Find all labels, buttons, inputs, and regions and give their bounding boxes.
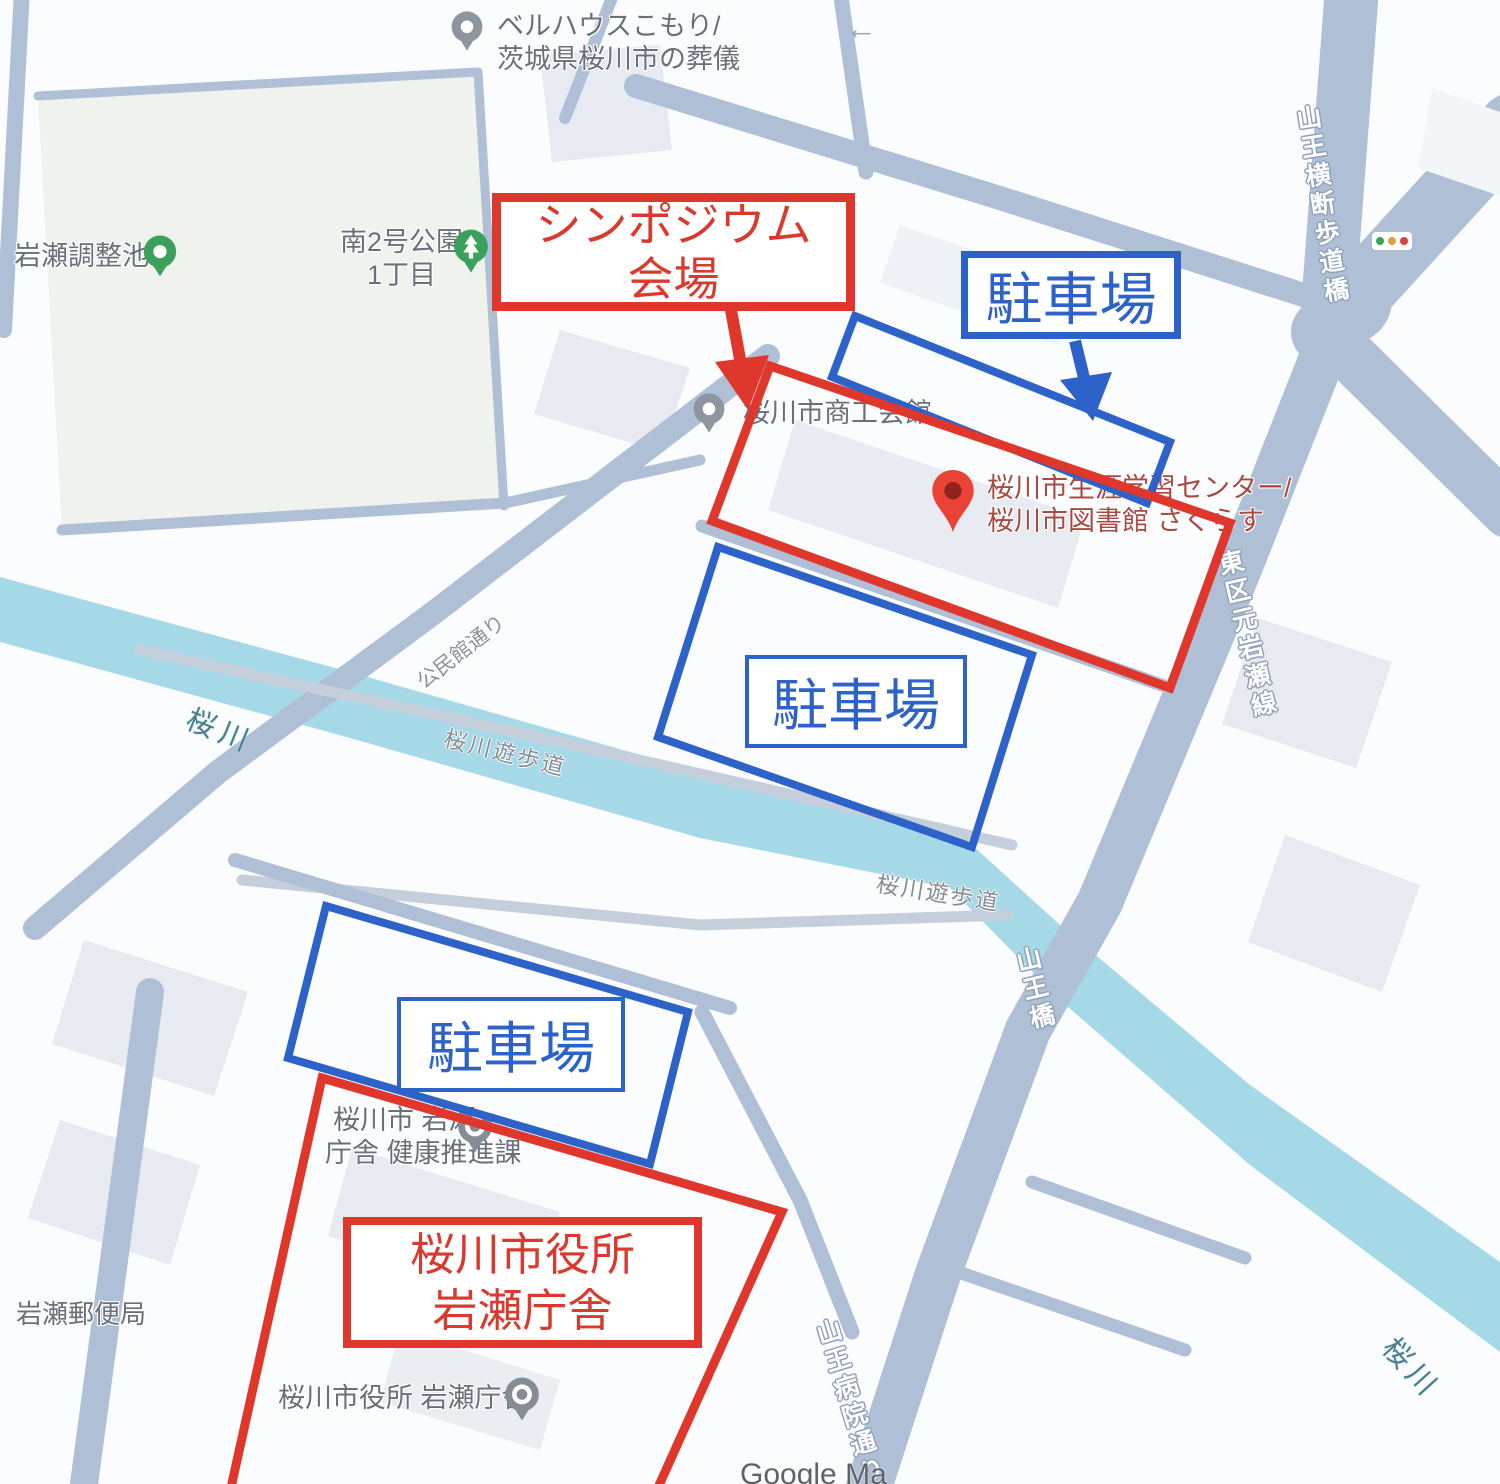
traffic-light-icon: [1372, 232, 1412, 255]
funeral-poi-marker-icon: [450, 10, 484, 57]
river-label-southeast: 桜川: [1374, 1327, 1452, 1407]
parking-label-box-middle: 駐車場: [745, 655, 967, 748]
park-area: [38, 72, 504, 530]
parking-label-box-lower: 駐車場: [397, 997, 625, 1092]
parking-arrow: [1060, 341, 1112, 421]
government-marker-icon: [456, 1108, 494, 1159]
learning-center-label: 桜川市生涯学習センター/ 桜川市図書館 さくらす: [987, 472, 1292, 538]
funeral-home-label: ベルハウスこもり/ 茨城県桜川市の葬儀: [497, 10, 740, 76]
promenade-label-south: 桜川遊歩道: [874, 864, 1003, 917]
map-canvas: ← ベルハウスこもり/ 茨城県桜川市の葬儀 岩瀬調整池B 南2号公園 1丁目 桜…: [0, 0, 1500, 1484]
corner-buildings: [1418, 88, 1500, 196]
venue-label-box: シンポジウム 会場: [492, 193, 855, 311]
park-marker-icon: [452, 228, 490, 279]
government-marker-icon: [503, 1376, 541, 1427]
map-attribution: Google Ma: [740, 1458, 887, 1484]
cityhall-label-box: 桜川市役所 岩瀬庁舎: [343, 1217, 702, 1348]
post-office-label: 岩瀬郵便局: [16, 1298, 146, 1331]
parking-label-box-top: 駐車場: [961, 251, 1181, 339]
chamber-poi-marker-icon: [692, 392, 726, 439]
reservoir-marker-icon: [142, 234, 178, 283]
road-label-motoiwase: 東区元岩瀬線: [1209, 546, 1283, 724]
local-street-label: 公民館通り: [410, 607, 511, 695]
chamber-of-commerce-label: 桜川市商工会館: [743, 397, 932, 430]
road-label-ped-bridge: 山王横断歩道橋: [1287, 102, 1354, 308]
one-way-arrow-icon: ←: [845, 10, 877, 47]
cityhall-poi-label: 桜川市役所 岩瀬庁舎: [278, 1382, 529, 1415]
promenade-label-north: 桜川遊歩道: [441, 719, 571, 782]
venue-pin-icon: [930, 470, 976, 539]
road-label-sanno-bridge: 山王橋: [1007, 943, 1062, 1036]
river-label-west: 桜川: [181, 696, 262, 761]
park-label: 南2号公園 1丁目: [340, 226, 463, 292]
